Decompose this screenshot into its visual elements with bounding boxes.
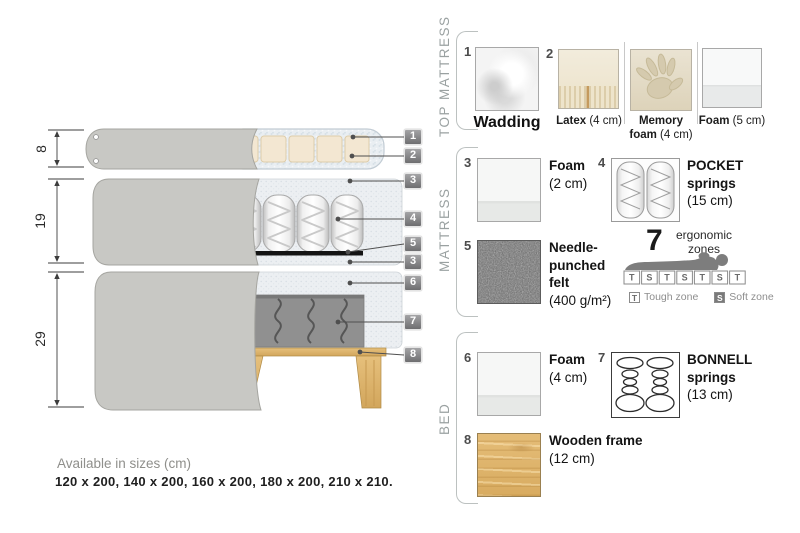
foam2-label: Foam (2 cm): [549, 157, 587, 192]
bonnell-springs-thumbnail: [611, 352, 680, 418]
zone-letter: T: [735, 273, 741, 283]
foam2-thumbnail: [477, 158, 541, 222]
item-number-pocket: 4: [598, 155, 605, 170]
bed-layer: [95, 272, 402, 410]
callout-3-top: 3: [404, 173, 422, 189]
bed-fabric: [95, 272, 261, 410]
foam5-label: Foam (5 cm): [684, 114, 780, 128]
dimension-bed: 29: [32, 331, 48, 347]
callout-4: 4: [404, 211, 422, 227]
felt-texture: [478, 241, 540, 303]
tough-zone-label: Tough zone: [644, 291, 698, 303]
soft-zone-key: S: [714, 292, 725, 303]
item-number-bonnell: 7: [598, 350, 605, 365]
bonnell-label: BONNELL springs (13 cm): [687, 351, 752, 404]
felt-name3: felt: [549, 275, 569, 290]
foam4-thumbnail: [477, 352, 541, 416]
wooden-frame-thumbnail: [477, 433, 541, 497]
bonnell-name2: springs: [687, 370, 736, 385]
callout-1: 1: [404, 129, 422, 145]
foam5-size: (5 cm): [733, 115, 766, 127]
piping-button: [94, 135, 99, 140]
sizes-title: Available in sizes (cm): [57, 456, 191, 471]
bonnell-size: (13 cm): [687, 387, 733, 402]
section-label-mattress: MATTRESS: [437, 187, 452, 272]
ergonomic-zones-graphic: T S T S T S T: [622, 249, 748, 287]
pocket-springs-label: POCKET springs (15 cm): [687, 157, 743, 210]
dimension-lines: [48, 130, 84, 407]
felt-label: Needle- punched felt (400 g/m²): [549, 239, 611, 309]
felt-name2: punched: [549, 258, 605, 273]
frame-name: Wooden frame: [549, 433, 643, 448]
callout-6: 6: [404, 275, 422, 291]
callout-5: 5: [404, 236, 422, 252]
sleeping-person-icon: [625, 252, 728, 270]
pocket-name2: springs: [687, 176, 736, 191]
infographic-canvas: 1 2 3 4 5 3 6 7 8 8 19 29 TOP MATTRESS 1…: [0, 0, 800, 533]
bonnell-name1: BONNELL: [687, 352, 752, 367]
latex-name: Latex: [556, 115, 586, 127]
divider: [624, 42, 625, 124]
pocket-springs-icon: [612, 159, 679, 221]
foam5-name: Foam: [699, 115, 730, 127]
item-number-felt: 5: [464, 238, 471, 253]
foam4-label: Foam (4 cm): [549, 351, 587, 386]
pocket-size: (15 cm): [687, 193, 733, 208]
callout-3-bottom: 3: [404, 254, 422, 270]
zone-legend: T Tough zone S Soft zone: [629, 291, 774, 303]
felt-name1: Needle-: [549, 240, 598, 255]
wood-leg-right: [356, 356, 381, 408]
foam2-size: (2 cm): [549, 176, 587, 191]
latex-thumbnail: [558, 49, 619, 109]
sizes-list: 120 x 200, 140 x 200, 160 x 200, 180 x 2…: [55, 474, 393, 489]
felt-size: (400 g/m²): [549, 293, 611, 308]
soft-zone-label: Soft zone: [729, 291, 773, 303]
wooden-frame-label: Wooden frame (12 cm): [549, 432, 643, 467]
dimension-top-mattress: 8: [33, 145, 49, 153]
hand-imprint-icon: [631, 50, 691, 110]
memory-name2: foam: [629, 129, 656, 141]
zone-letter: T: [664, 273, 670, 283]
top-mattress-fabric: [86, 129, 257, 169]
mattress-fabric: [93, 179, 259, 265]
section-label-top-mattress: TOP MATTRESS: [437, 15, 452, 137]
memory-size: (4 cm): [660, 129, 693, 141]
zone-letter: S: [646, 273, 652, 283]
tough-zone-key: T: [629, 292, 640, 303]
mattress-layer: [93, 179, 402, 265]
item-number-foam4: 6: [464, 350, 471, 365]
zone-letter: S: [717, 273, 723, 283]
piping-button: [94, 159, 99, 164]
bonnell-springs-icon: [612, 353, 679, 417]
item-number-latex: 2: [546, 46, 553, 61]
foam5-thumbnail: [702, 48, 762, 108]
item-number-frame: 8: [464, 432, 471, 447]
callout-2: 2: [404, 148, 422, 164]
zone-boxes: T S T S T S T: [624, 271, 745, 284]
zone-letter: T: [629, 273, 635, 283]
item-number-foam2: 3: [464, 155, 471, 170]
zone-letter: T: [699, 273, 705, 283]
top-mattress-layer: [86, 129, 384, 169]
memory-name1: Memory: [639, 115, 683, 127]
pocket-springs-thumbnail: [611, 158, 680, 222]
callout-7: 7: [404, 314, 422, 330]
item-number-wadding: 1: [464, 44, 471, 59]
foam4-name: Foam: [549, 352, 585, 367]
frame-size: (12 cm): [549, 451, 595, 466]
dimension-mattress: 19: [32, 213, 48, 229]
latex-blocks: [233, 136, 369, 162]
wadding-thumbnail: [475, 47, 539, 111]
ergonomic-label1: ergonomic: [676, 228, 732, 242]
section-bracket-mattress: [456, 147, 478, 317]
zone-letter: S: [682, 273, 688, 283]
foam4-size: (4 cm): [549, 370, 587, 385]
memory-foam-thumbnail: [630, 49, 692, 111]
foam2-name: Foam: [549, 158, 585, 173]
felt-thumbnail: [477, 240, 541, 304]
divider: [697, 42, 698, 124]
callout-8: 8: [404, 347, 422, 363]
pocket-name1: POCKET: [687, 158, 743, 173]
section-label-bed: BED: [437, 403, 452, 435]
